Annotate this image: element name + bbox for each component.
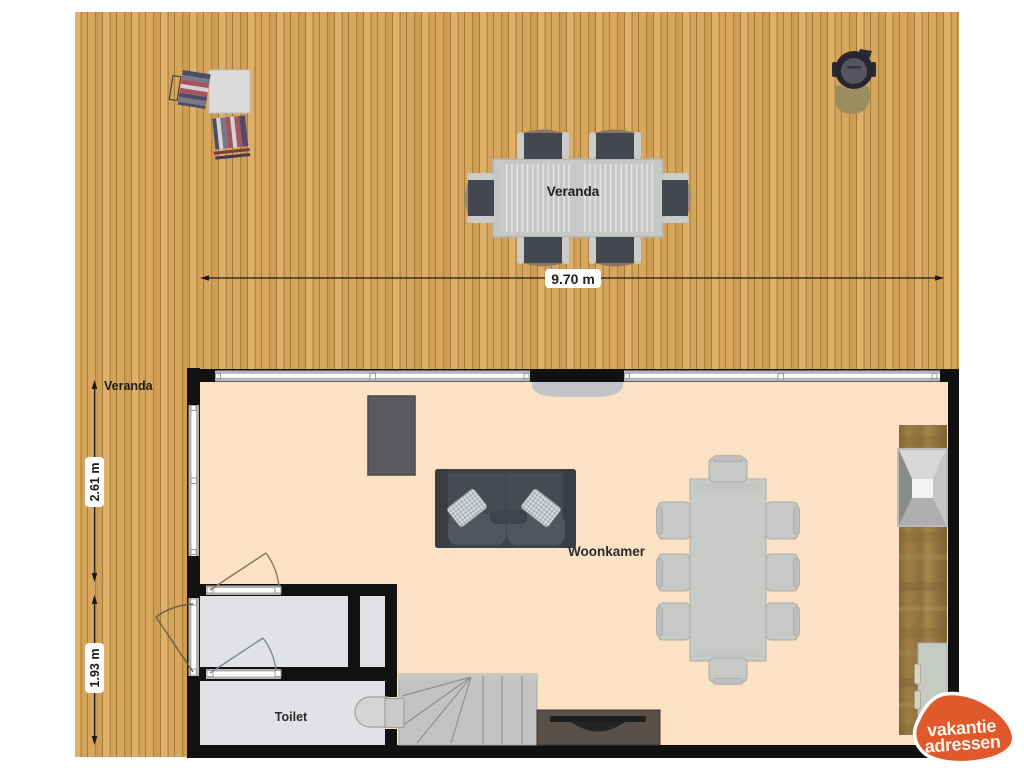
- svg-text:1.93 m: 1.93 m: [88, 649, 102, 688]
- svg-text:9.70 m: 9.70 m: [551, 271, 595, 287]
- svg-text:Veranda: Veranda: [104, 379, 154, 393]
- svg-text:2.61 m: 2.61 m: [88, 463, 102, 502]
- svg-text:Toilet: Toilet: [275, 710, 308, 724]
- svg-text:Veranda: Veranda: [547, 184, 600, 199]
- svg-text:Woonkamer: Woonkamer: [568, 544, 646, 559]
